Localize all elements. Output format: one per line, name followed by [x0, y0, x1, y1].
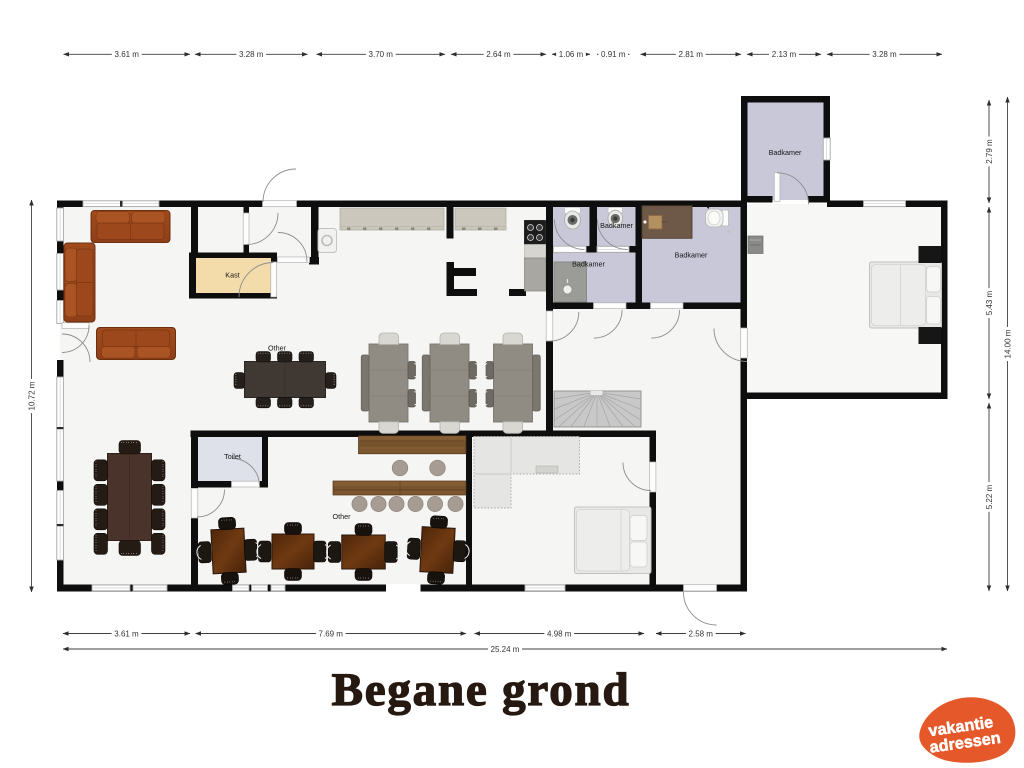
svg-text:Toilet: Toilet	[224, 452, 241, 461]
svg-text:2.64 m: 2.64 m	[486, 50, 511, 59]
svg-text:Begane grond: Begane grond	[332, 664, 631, 716]
svg-text:7.69 m: 7.69 m	[319, 629, 344, 638]
svg-text:3.28 m: 3.28 m	[872, 50, 897, 59]
svg-text:5.43 m: 5.43 m	[985, 290, 994, 315]
svg-text:2.13 m: 2.13 m	[772, 50, 797, 59]
svg-text:2.79 m: 2.79 m	[985, 139, 994, 164]
svg-text:Badkamer: Badkamer	[769, 148, 802, 157]
svg-text:1.06 m: 1.06 m	[559, 50, 584, 59]
svg-text:3.28 m: 3.28 m	[239, 50, 264, 59]
svg-text:3.70 m: 3.70 m	[369, 50, 394, 59]
svg-text:3.61 m: 3.61 m	[115, 50, 140, 59]
svg-text:25.24 m: 25.24 m	[491, 645, 520, 654]
svg-text:Other: Other	[333, 512, 352, 521]
svg-text:Badkamer: Badkamer	[600, 221, 633, 230]
svg-text:10.72 m: 10.72 m	[27, 381, 36, 410]
svg-text:Kast: Kast	[225, 271, 239, 280]
svg-text:5.22 m: 5.22 m	[985, 484, 994, 509]
svg-text:3.61 m: 3.61 m	[114, 629, 139, 638]
svg-text:2.58 m: 2.58 m	[689, 629, 714, 638]
svg-text:Other: Other	[268, 344, 287, 353]
svg-text:4.98 m: 4.98 m	[547, 629, 572, 638]
svg-text:14.00 m: 14.00 m	[1003, 329, 1012, 358]
svg-text:0.91 m: 0.91 m	[601, 50, 626, 59]
svg-text:2.81 m: 2.81 m	[679, 50, 704, 59]
svg-text:Badkamer: Badkamer	[572, 260, 605, 269]
svg-text:Badkamer: Badkamer	[675, 251, 708, 260]
